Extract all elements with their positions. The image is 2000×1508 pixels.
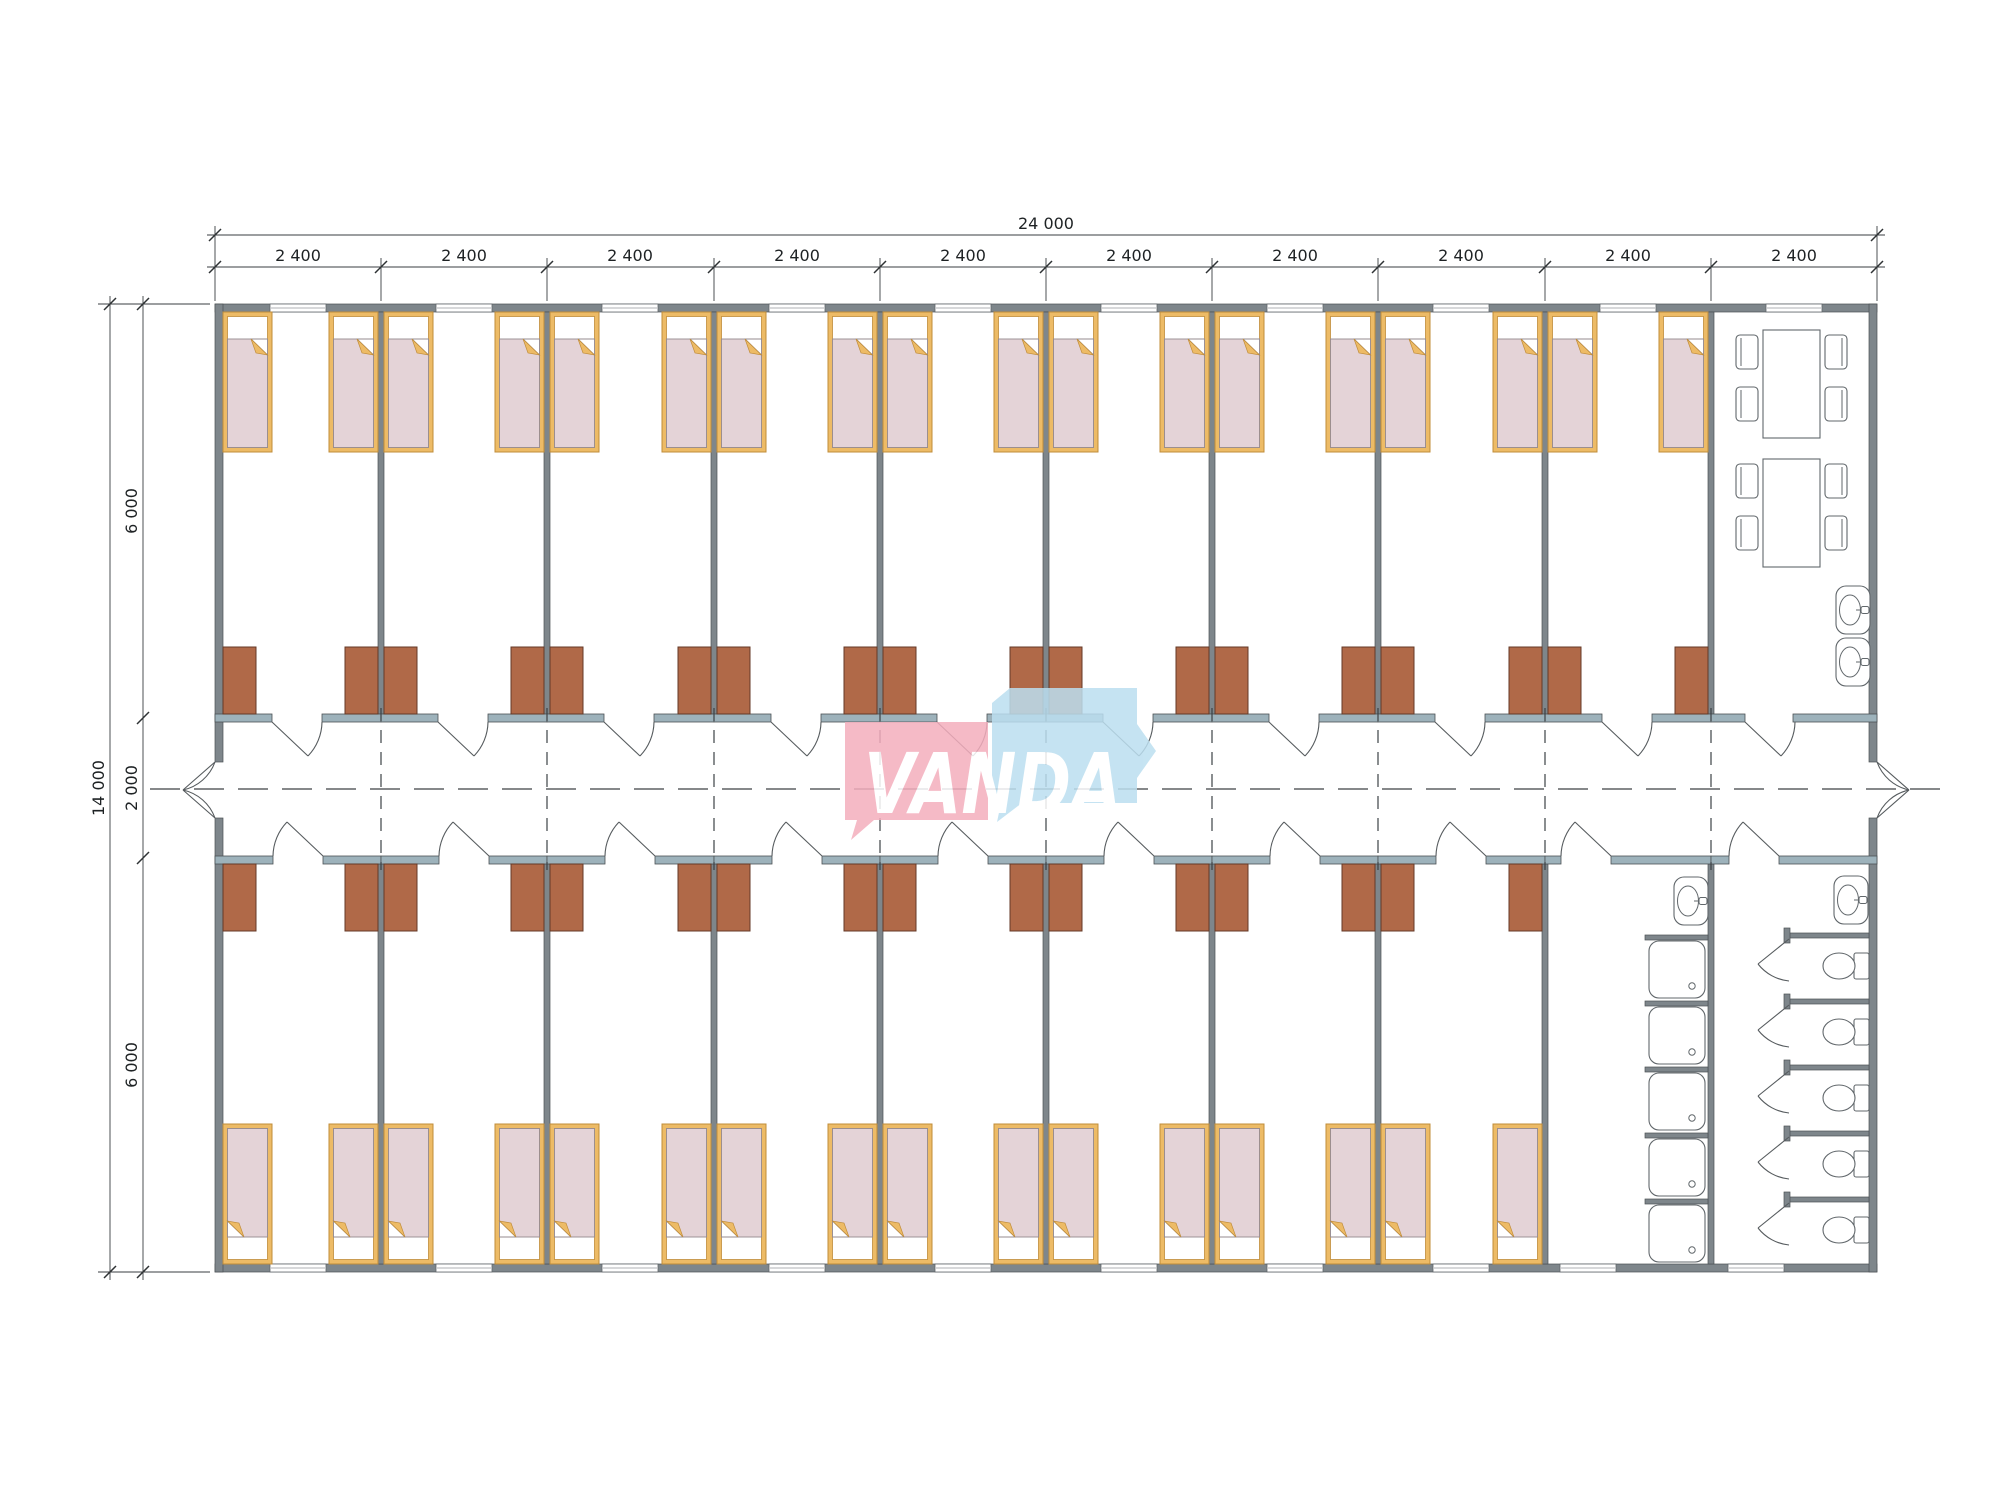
dim-bottom-depth: 6 000 (122, 1042, 141, 1088)
room-door (604, 722, 654, 756)
bed (1326, 1124, 1375, 1264)
dim-module-3: 2 400 (607, 246, 653, 265)
bed (1326, 312, 1375, 452)
bed (994, 312, 1043, 452)
partition-wall (1209, 864, 1215, 1264)
window (1600, 304, 1656, 312)
room-door (272, 722, 322, 756)
toilet (1823, 1019, 1869, 1045)
room-door (439, 822, 489, 856)
dim-module-5: 2 400 (940, 246, 986, 265)
window (769, 304, 825, 312)
bed (223, 312, 272, 452)
wardrobe (1675, 647, 1708, 714)
partition-wall (711, 312, 717, 714)
wardrobe (511, 647, 544, 714)
dim-module-2: 2 400 (441, 246, 487, 265)
wash-basin (1836, 638, 1870, 686)
bed (828, 312, 877, 452)
bed (495, 312, 544, 452)
window (436, 1264, 492, 1272)
wardrobe (550, 647, 583, 714)
partition-wall (1708, 312, 1714, 714)
entrance-door-east (1877, 762, 1909, 818)
dim-module-8: 2 400 (1438, 246, 1484, 265)
bed (495, 1124, 544, 1264)
bed (994, 1124, 1043, 1264)
dim-corridor-width: 2 000 (122, 765, 141, 811)
bed (828, 1124, 877, 1264)
bed (223, 1124, 272, 1264)
window (436, 304, 492, 312)
wardrobe (384, 864, 417, 931)
toilet-stall-door (1758, 1005, 1789, 1047)
bed (1493, 312, 1542, 452)
wash-basin (1674, 877, 1708, 925)
exterior-wall-right (1869, 304, 1877, 762)
wardrobes-top-row (223, 647, 1708, 714)
wardrobe (678, 864, 711, 931)
bed (717, 312, 766, 452)
wardrobe (384, 647, 417, 714)
window (1728, 1264, 1784, 1272)
bed (662, 1124, 711, 1264)
bed (329, 312, 378, 452)
window (270, 1264, 326, 1272)
wardrobe (717, 864, 750, 931)
toilet-stall-door (1758, 1071, 1789, 1113)
toilet (1823, 1217, 1869, 1243)
window (935, 304, 991, 312)
bed (1381, 312, 1430, 452)
room-door (1435, 722, 1485, 756)
partition-wall (1043, 864, 1049, 1264)
wardrobe (345, 647, 378, 714)
toilet-stall-door (1758, 1203, 1789, 1245)
dim-module-6: 2 400 (1106, 246, 1152, 265)
window (1101, 1264, 1157, 1272)
bed (717, 1124, 766, 1264)
wardrobe (345, 864, 378, 931)
partition-wall (711, 864, 717, 1264)
wardrobe (1010, 864, 1043, 931)
window (270, 304, 326, 312)
toilet-stall-door (1758, 939, 1789, 981)
room-door (1270, 822, 1320, 856)
partition-wall (1542, 312, 1548, 714)
beds-bottom-row (223, 1124, 1542, 1264)
dim-module-1: 2 400 (275, 246, 321, 265)
bed (1215, 1124, 1264, 1264)
wash-basin (1836, 586, 1870, 634)
shower-tray (1649, 1139, 1705, 1196)
wardrobe (1049, 864, 1082, 931)
bed (1548, 312, 1597, 452)
wardrobe (883, 647, 916, 714)
shower-tray (1649, 941, 1705, 998)
partition-wall (1043, 312, 1049, 714)
bed (1381, 1124, 1430, 1264)
wardrobe (844, 647, 877, 714)
bed (883, 312, 932, 452)
wardrobe (717, 647, 750, 714)
window (1560, 1264, 1616, 1272)
partition-wall (544, 312, 550, 714)
dim-overall-width: 24 000 (1018, 214, 1074, 233)
beds-top-row (223, 312, 1708, 452)
bed (1215, 312, 1264, 452)
bed (1659, 312, 1708, 452)
wardrobe (1215, 647, 1248, 714)
toilet (1823, 1151, 1869, 1177)
wardrobe (1381, 864, 1414, 931)
window (1766, 304, 1822, 312)
partition-wall (378, 864, 384, 1264)
shower-tray (1649, 1073, 1705, 1130)
partition-wall (877, 864, 883, 1264)
toilet-room-door (1729, 822, 1779, 856)
room-door (772, 822, 822, 856)
exterior-wall-right (1869, 818, 1877, 1272)
bed (1160, 312, 1209, 452)
room-door (1602, 722, 1652, 756)
wardrobe (1342, 864, 1375, 931)
toilet-stall-door (1758, 1137, 1789, 1179)
room-door (771, 722, 821, 756)
table-set (1736, 459, 1847, 567)
dining-room-door (1745, 722, 1795, 756)
wardrobe (883, 864, 916, 931)
wardrobe (1548, 647, 1581, 714)
table-set (1736, 330, 1847, 438)
partition-wall (544, 864, 550, 1264)
entrance-door-west (183, 762, 215, 818)
dim-module-4: 2 400 (774, 246, 820, 265)
wardrobe (550, 864, 583, 931)
bed (883, 1124, 932, 1264)
window (1433, 304, 1489, 312)
bed (329, 1124, 378, 1264)
toilet (1823, 1085, 1869, 1111)
window (935, 1264, 991, 1272)
partition-wall (1209, 312, 1215, 714)
shower-tray (1649, 1205, 1705, 1262)
exterior-wall-left (215, 304, 223, 762)
bed (384, 1124, 433, 1264)
window (1433, 1264, 1489, 1272)
wardrobe (1176, 647, 1209, 714)
partition-wall (1708, 864, 1714, 1264)
window (1101, 304, 1157, 312)
logo-text: VANDA (864, 735, 1122, 833)
wardrobe (1381, 647, 1414, 714)
window (602, 1264, 658, 1272)
wardrobe (1509, 864, 1542, 931)
bed (662, 312, 711, 452)
bed (384, 312, 433, 452)
wardrobe (678, 647, 711, 714)
shower-room-door (1561, 822, 1611, 856)
wardrobe (223, 864, 256, 931)
partition-wall (378, 312, 384, 714)
window (1267, 1264, 1323, 1272)
dim-overall-height: 14 000 (89, 760, 108, 816)
toilet (1823, 953, 1869, 979)
partition-wall (877, 312, 883, 714)
bed (550, 1124, 599, 1264)
window (602, 304, 658, 312)
dim-module-9: 2 400 (1605, 246, 1651, 265)
room-door (438, 722, 488, 756)
window (1267, 304, 1323, 312)
wash-basin (1834, 876, 1868, 924)
bed (1493, 1124, 1542, 1264)
bed (550, 312, 599, 452)
dim-module-10: 2 400 (1771, 246, 1817, 265)
wardrobes-bottom-row (223, 864, 1542, 931)
floor-plan-page: 24 000 2 400 2 400 2 400 2 400 2 400 2 4… (0, 0, 2000, 1508)
wardrobe (1176, 864, 1209, 931)
dim-module-7: 2 400 (1272, 246, 1318, 265)
room-door (1436, 822, 1486, 856)
wardrobe (1509, 647, 1542, 714)
shower-tray (1649, 1007, 1705, 1064)
partition-wall (1542, 864, 1548, 1264)
wardrobe (844, 864, 877, 931)
room-door (605, 822, 655, 856)
dim-top-depth: 6 000 (122, 488, 141, 534)
bed (1049, 1124, 1098, 1264)
dining-room (1736, 330, 1870, 686)
bed (1049, 312, 1098, 452)
wardrobe (223, 647, 256, 714)
bed (1160, 1124, 1209, 1264)
wardrobe (1342, 647, 1375, 714)
wardrobe (511, 864, 544, 931)
floor-plan-drawing: 24 000 2 400 2 400 2 400 2 400 2 400 2 4… (0, 0, 2000, 1508)
room-door (273, 822, 323, 856)
room-door (1269, 722, 1319, 756)
window (769, 1264, 825, 1272)
partition-wall (1375, 312, 1381, 714)
partition-wall (1375, 864, 1381, 1264)
exterior-wall-left (215, 818, 223, 1272)
wardrobe (1215, 864, 1248, 931)
